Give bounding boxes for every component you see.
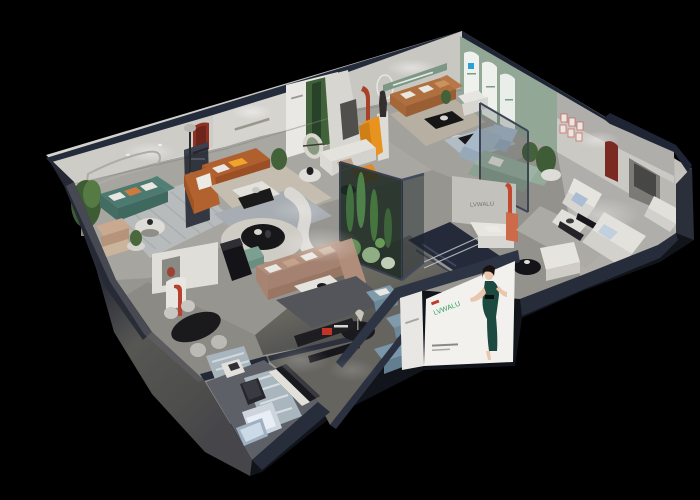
- svg-text:LVWALU: LVWALU: [470, 201, 494, 208]
